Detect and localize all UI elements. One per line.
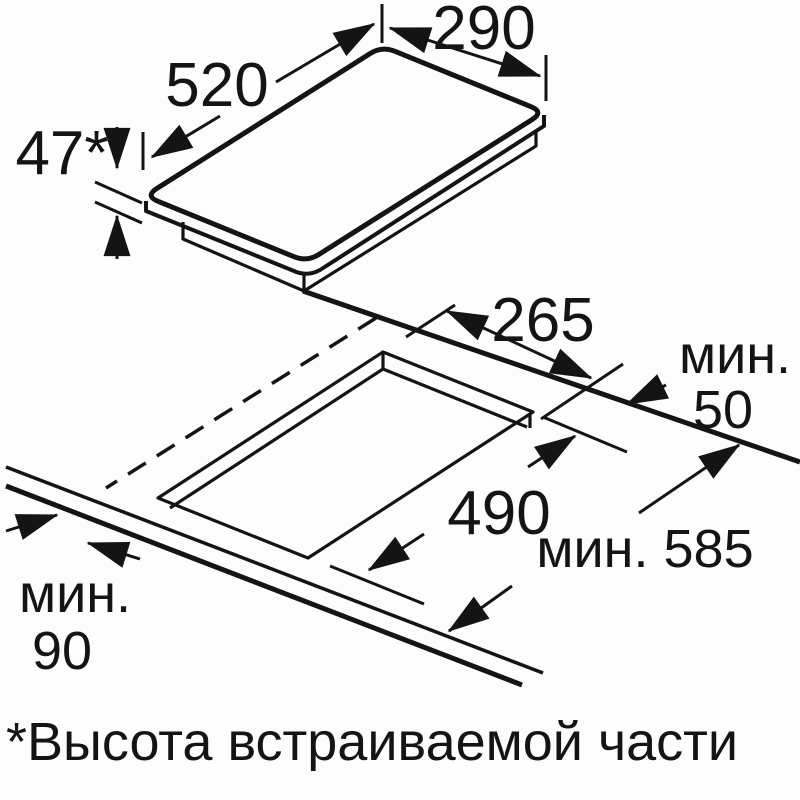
dim-520-line-upper [276,24,374,82]
dim-47-label: 47* [15,119,108,188]
clearance-50-arrow [627,385,666,404]
clearance-585-line-upper [639,445,739,513]
dim-490-line-lower [369,534,424,570]
clearance-90-prefix: мин. [19,564,131,624]
clearance-50-prefix: мин. [679,325,791,385]
cooktop-body [183,130,536,291]
dim-490-ext-right [543,417,627,452]
installation-diagram-page: 520 290 47* [0,0,800,800]
appliance-dimensions: 520 290 47* [15,0,546,259]
cutout-dimensions: 265 мин. 50 490 мин. 585 мин. 90 [6,286,791,681]
cutout-thickness-left [170,369,383,508]
clearance-90-value: 90 [32,621,92,681]
clearance-585-label: мин. 585 [536,519,753,579]
cutout-thickness-right [383,369,527,427]
clearance-50-value: 50 [693,380,753,440]
dim-265-label: 265 [491,286,594,355]
dim-520-line-lower [152,116,220,157]
dim-490-label: 490 [447,479,550,548]
clearance-90-arrow-right [88,543,140,559]
clearance-585-line-lower [449,586,512,631]
dim-290-label: 290 [432,0,535,63]
dim-490-line-upper [528,436,575,467]
footnote-builtin-height: *Высота встраиваемой части [6,712,738,772]
dim-520-label: 520 [165,51,268,120]
installation-diagram: 520 290 47* [0,0,800,800]
clearance-90-arrow-left [6,515,57,531]
